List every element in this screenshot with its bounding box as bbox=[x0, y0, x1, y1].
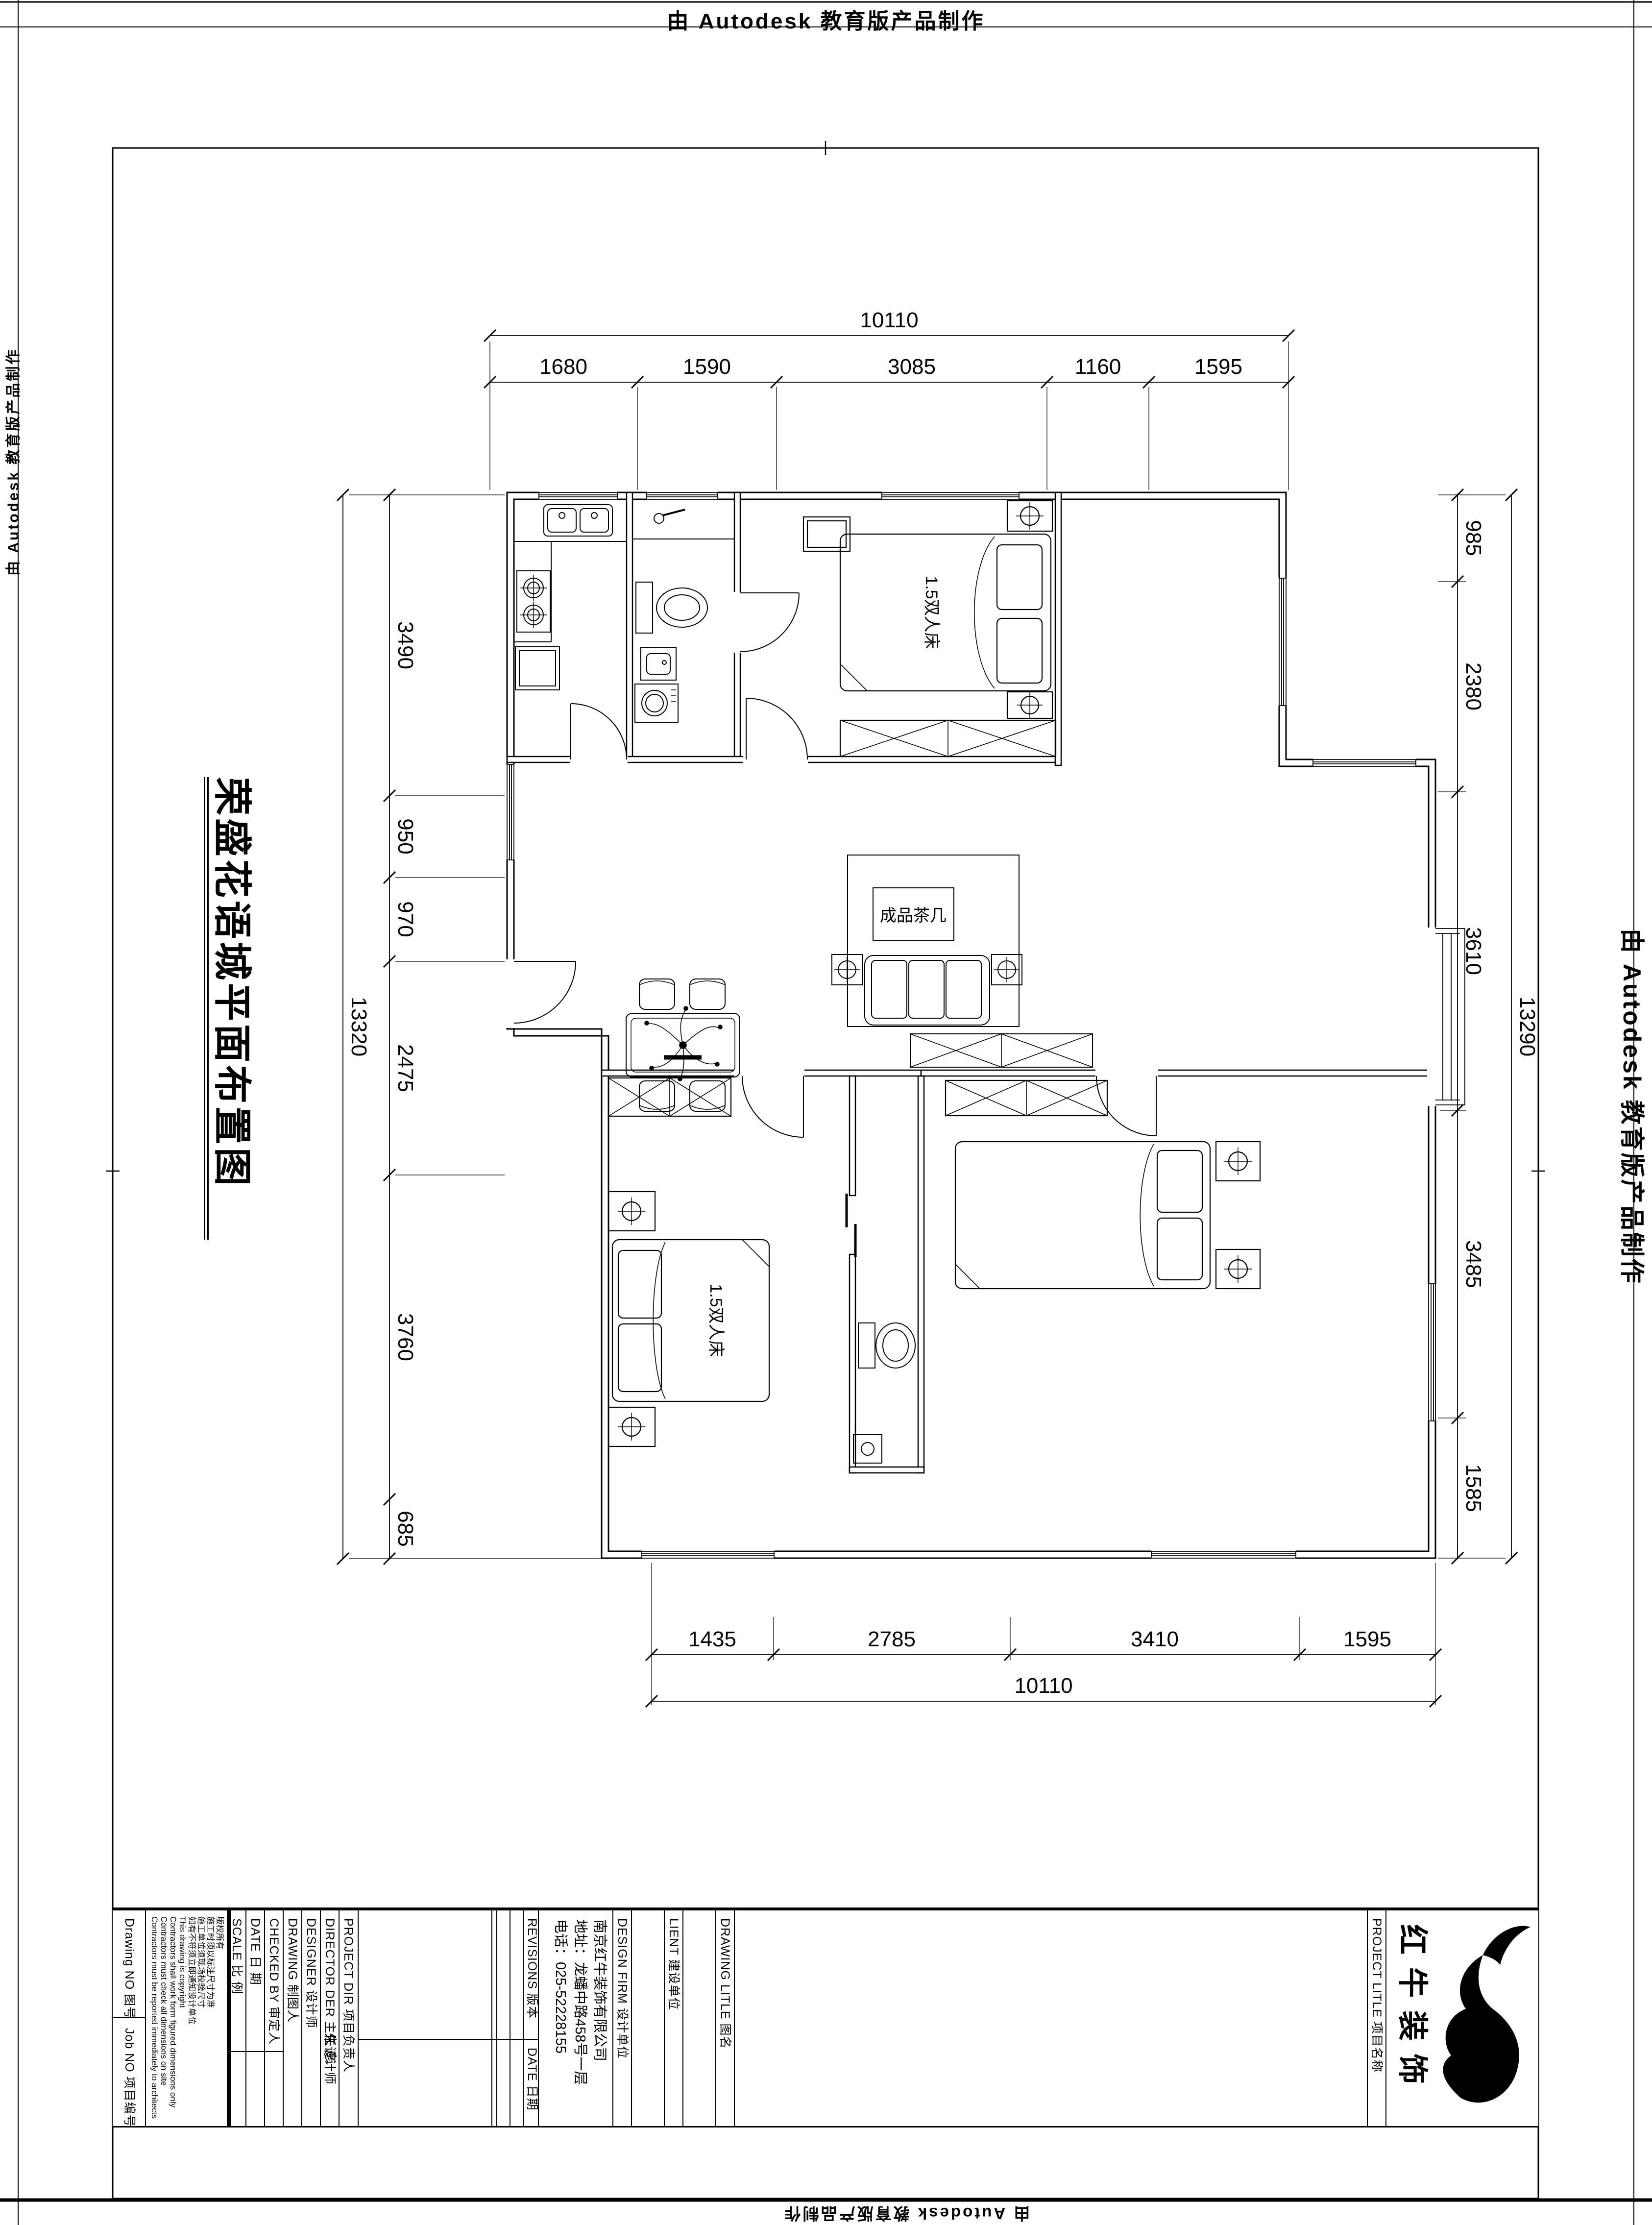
tb-line bbox=[664, 1910, 665, 2126]
nightstand bbox=[1216, 1249, 1260, 1289]
tb-line bbox=[1385, 1910, 1386, 2126]
tb-line bbox=[358, 2039, 538, 2040]
design-firm-info: 南京红牛装饰有限公司 地址：龙蟠中路458号一层 电话：025-52228155 bbox=[546, 1919, 609, 2117]
tb-line bbox=[682, 1910, 683, 2126]
firm-line: 南京红牛装饰有限公司 bbox=[590, 1919, 609, 2117]
window bbox=[882, 491, 1019, 501]
living-room bbox=[832, 855, 1093, 1067]
wardrobe bbox=[840, 720, 1056, 757]
bed-label-second: 1.5双人床 bbox=[706, 1284, 725, 1357]
bull-logo bbox=[1432, 1919, 1534, 2115]
sheet-border bbox=[113, 148, 1538, 2199]
window bbox=[506, 764, 515, 860]
dim-label: 1590 bbox=[683, 355, 731, 379]
bathroom-2 bbox=[853, 1323, 915, 1463]
washbasin bbox=[641, 648, 676, 680]
bed-master bbox=[840, 534, 1051, 691]
washing-machine bbox=[635, 684, 678, 722]
door-sliding-bath2 bbox=[847, 1194, 855, 1257]
dim-label: 2475 bbox=[393, 1044, 417, 1092]
tb-line bbox=[734, 1910, 735, 2126]
window bbox=[642, 1550, 774, 1560]
door-entry bbox=[505, 959, 576, 1028]
nightstand bbox=[608, 1192, 655, 1231]
bay-window bbox=[1427, 928, 1465, 1106]
project-title-label: PROJECT LITLE 项目名称 bbox=[1369, 1918, 1385, 2104]
tb-line bbox=[283, 1910, 284, 2126]
nightstand bbox=[1216, 1142, 1260, 1181]
door-bedroom-3 bbox=[1095, 1069, 1158, 1136]
toilet-2 bbox=[858, 1323, 915, 1368]
chair bbox=[639, 979, 675, 1009]
field-scale: SCALE 比 例 bbox=[229, 1918, 244, 2085]
drawing-title-label: DRAWING LITLE 图名 bbox=[717, 1918, 733, 2095]
dim-label: 3760 bbox=[393, 1313, 417, 1361]
dim-label: 2380 bbox=[1461, 662, 1485, 710]
dim-label: 950 bbox=[393, 818, 417, 854]
nightstand bbox=[608, 1407, 655, 1446]
dim-label: 1585 bbox=[1461, 1464, 1485, 1512]
tb-line bbox=[264, 1910, 265, 2126]
job-no-label: Job NO 项目编号 bbox=[121, 2028, 138, 2190]
autodesk-stamp-left: 由 Autodesk 教育版产品制作 bbox=[3, 321, 24, 576]
title-block: Drawing NO 图号 Job NO 项目编号 版权所有 施工时须以标注尺寸… bbox=[113, 1907, 1538, 2127]
nightstand bbox=[1007, 501, 1052, 531]
window bbox=[1427, 1284, 1437, 1421]
tb-line bbox=[631, 1910, 632, 2126]
dim-label: 1435 bbox=[688, 1627, 736, 1651]
floor-drain bbox=[853, 1435, 882, 1463]
dim-label: 1680 bbox=[539, 355, 587, 379]
tb-line bbox=[510, 1910, 510, 2126]
tb-line bbox=[245, 1910, 246, 2126]
tb-line bbox=[320, 1910, 321, 2126]
dim-label: 1160 bbox=[1075, 355, 1121, 379]
field-drawing: DRAWING 制图人 bbox=[285, 1918, 300, 2095]
autodesk-stamp-bottom: 由 Autodesk 教育版产品制作 bbox=[730, 2203, 1083, 2225]
revisions-date-label: DATE 日期 bbox=[525, 2048, 539, 2121]
window bbox=[647, 491, 718, 501]
autodesk-stamp-top: 由 Autodesk 教育版产品制作 bbox=[0, 3, 1652, 35]
nightstand bbox=[1007, 692, 1052, 718]
dining-area bbox=[626, 979, 740, 1111]
dim-label: 3485 bbox=[1461, 1240, 1485, 1288]
kitchen-counter bbox=[514, 541, 627, 642]
bed-third bbox=[955, 1142, 1210, 1289]
bathroom bbox=[632, 510, 734, 722]
copyright-line: This drawing is copyright bbox=[178, 1916, 187, 2120]
side-table-lamp bbox=[832, 954, 862, 985]
dim-label: 10110 bbox=[860, 308, 918, 332]
tb-line bbox=[612, 1910, 613, 2126]
field-designer: DESIGNER 设计师 bbox=[303, 1918, 319, 2095]
door-bedroom-1 bbox=[743, 698, 808, 763]
bedroom-2 bbox=[608, 1078, 769, 1446]
sheet-title: 荣盛花语城平面布置图 bbox=[204, 777, 255, 1240]
kitchen bbox=[514, 505, 627, 690]
tb-line bbox=[496, 1910, 497, 2126]
copyright-line: 施工单位须现场校验尺寸 bbox=[196, 1916, 206, 2120]
door-bedroom-2 bbox=[734, 1069, 804, 1137]
autodesk-stamp-right: 由 Autodesk 教育版产品制作 bbox=[1618, 929, 1646, 1467]
field-checked-by: CHECKED BY 审定人 bbox=[266, 1918, 282, 2095]
dim-label: 3410 bbox=[1131, 1627, 1179, 1651]
copyright-line: Contractors must be reported immediately… bbox=[150, 1916, 159, 2120]
dim-label: 685 bbox=[393, 1511, 417, 1546]
wardrobe bbox=[946, 1080, 1107, 1116]
dim-label: 3490 bbox=[393, 621, 417, 669]
dresser bbox=[803, 517, 850, 551]
coffee-table-label: 成品茶几 bbox=[880, 906, 947, 925]
windows bbox=[506, 491, 1465, 1560]
dimension-labels: 10110 1680 1590 3085 1160 1595 1435 2785… bbox=[347, 308, 1539, 1698]
field-date: DATE 日 期 bbox=[247, 1918, 263, 2085]
copyright-line: Contractors shall work form figured dime… bbox=[169, 1916, 178, 2120]
door-bathroom bbox=[733, 592, 799, 653]
copyright-line: 如有不符须立即通知设计单位 bbox=[187, 1916, 196, 2120]
window bbox=[1278, 578, 1288, 706]
faucet bbox=[654, 510, 685, 523]
dim-label: 3085 bbox=[888, 355, 936, 379]
tb-line bbox=[358, 1910, 359, 2126]
centering-marks bbox=[106, 141, 1545, 1171]
door-kitchen bbox=[570, 704, 628, 763]
bedroom-3 bbox=[946, 1080, 1260, 1289]
window bbox=[1151, 1550, 1296, 1560]
firm-line: 地址：龙蟠中路458号一层 bbox=[570, 1919, 590, 2117]
tb-line bbox=[523, 1910, 524, 2126]
sofa bbox=[865, 955, 990, 1025]
design-firm-label: DESIGN FIRM 设计单位 bbox=[614, 1918, 630, 2104]
wardrobe bbox=[608, 1078, 731, 1116]
window bbox=[539, 491, 617, 501]
tb-line bbox=[301, 1910, 302, 2126]
chair bbox=[690, 979, 725, 1009]
tb-line bbox=[1367, 1910, 1368, 2126]
director-value: 朱 彦 bbox=[322, 2033, 338, 2102]
toilet bbox=[636, 582, 707, 633]
dim-label: 3610 bbox=[1461, 927, 1485, 975]
copyright-line: 版权所有 bbox=[215, 1916, 224, 2120]
tb-line bbox=[339, 1910, 340, 2126]
field-project-dir: PROJECT DIR 项目负责人 bbox=[340, 1918, 356, 2095]
dim-label: 970 bbox=[393, 901, 417, 937]
bed-label-master: 1.5双人床 bbox=[922, 576, 941, 649]
dim-label: 13290 bbox=[1515, 997, 1539, 1056]
dim-label: 13320 bbox=[347, 997, 371, 1056]
dim-label: 1595 bbox=[1343, 1627, 1391, 1651]
side-table-lamp bbox=[992, 954, 1022, 985]
bed-second bbox=[612, 1240, 769, 1401]
cad-sheet: 1.5双人床 成品茶几 bbox=[0, 0, 1652, 2225]
tb-line bbox=[145, 1910, 146, 2126]
client-label: LIENT 建设单位 bbox=[666, 1918, 681, 2095]
dim-label: 2785 bbox=[868, 1627, 916, 1651]
copyright-line: Contractors must check all dimensions on… bbox=[159, 1916, 169, 2120]
logo-text: 红牛装饰 bbox=[1392, 1924, 1432, 2112]
firm-line: 电话：025-52228155 bbox=[551, 1919, 570, 2117]
copyright-line: 施工时须以标注尺寸为准 bbox=[206, 1916, 215, 2120]
fridge bbox=[515, 647, 559, 690]
dim-label: 1595 bbox=[1194, 355, 1242, 379]
window bbox=[1313, 758, 1416, 768]
copyright-notes: 版权所有 施工时须以标注尺寸为准 施工单位须现场校验尺寸 如有不符须立即通知设计… bbox=[149, 1916, 224, 2120]
chair bbox=[690, 1081, 725, 1111]
tb-line bbox=[715, 1910, 716, 2126]
cooktop bbox=[517, 571, 550, 632]
kitchen-sink bbox=[544, 505, 612, 536]
dim-label: 10110 bbox=[1014, 1674, 1072, 1698]
tv-cabinet bbox=[910, 1034, 1093, 1067]
tb-line bbox=[491, 1910, 492, 2126]
dim-label: 985 bbox=[1461, 520, 1485, 556]
